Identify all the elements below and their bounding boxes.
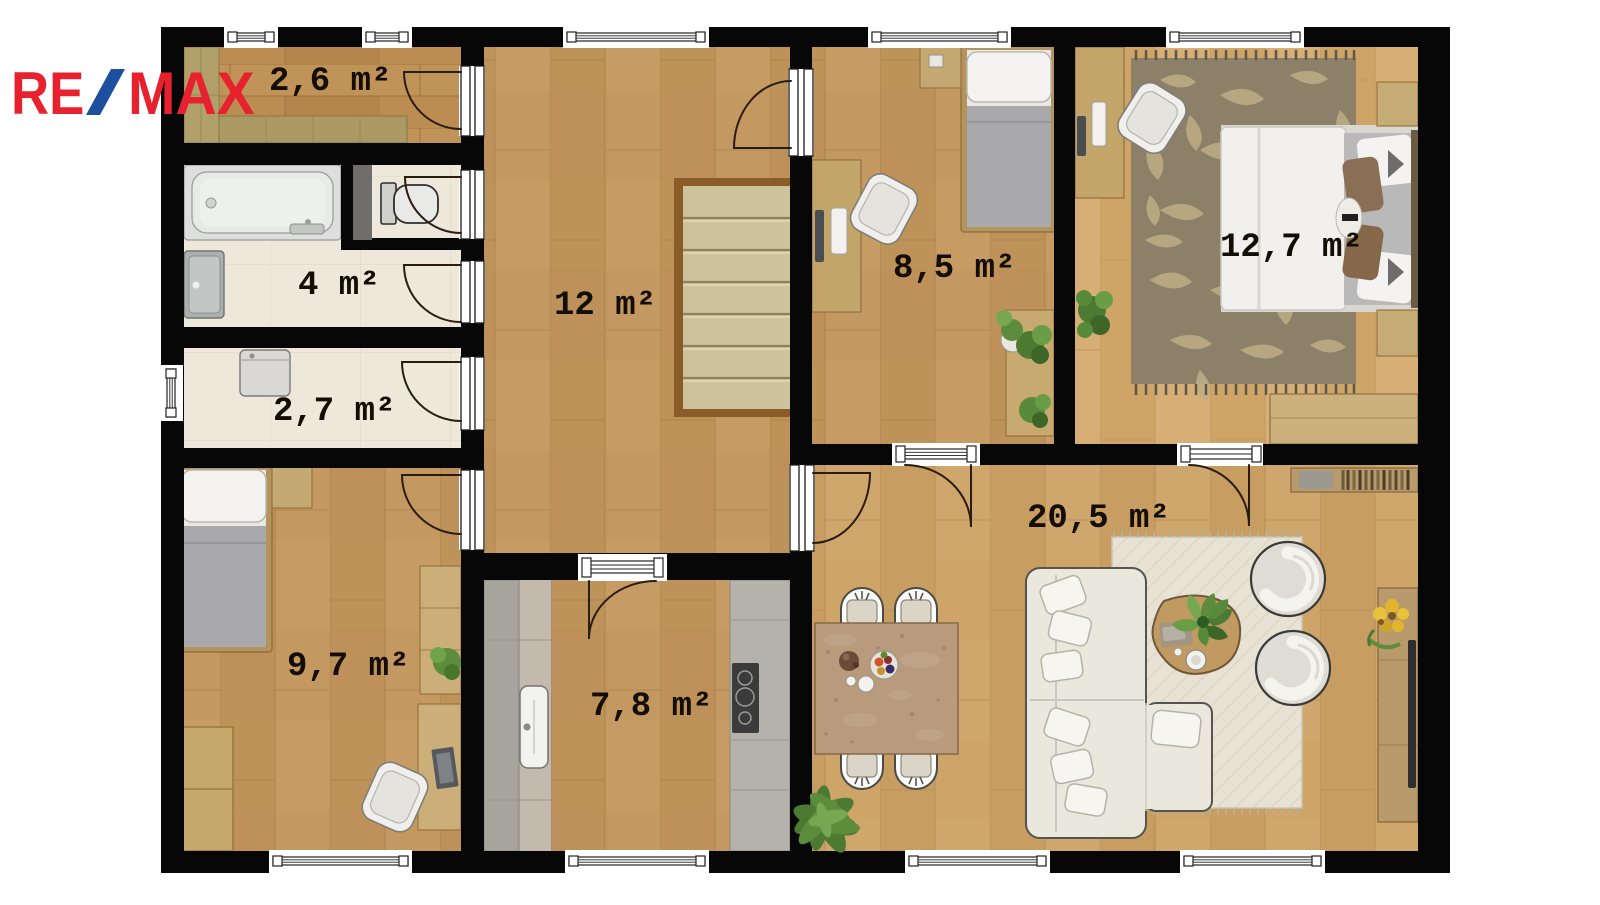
svg-text:9,7 m²: 9,7 m² bbox=[287, 648, 409, 686]
svg-text:8,5 m²: 8,5 m² bbox=[893, 250, 1015, 288]
svg-text:20,5 m²: 20,5 m² bbox=[1027, 500, 1170, 538]
svg-text:MAX: MAX bbox=[128, 61, 255, 128]
svg-text:2,6 m²: 2,6 m² bbox=[269, 63, 391, 101]
svg-text:7,8 m²: 7,8 m² bbox=[590, 688, 712, 726]
svg-text:RE: RE bbox=[11, 60, 84, 127]
svg-text:12,7 m²: 12,7 m² bbox=[1220, 229, 1363, 267]
svg-text:2,7 m²: 2,7 m² bbox=[273, 393, 395, 431]
svg-text:4 m²: 4 m² bbox=[298, 267, 380, 305]
svg-text:12 m²: 12 m² bbox=[554, 287, 656, 325]
